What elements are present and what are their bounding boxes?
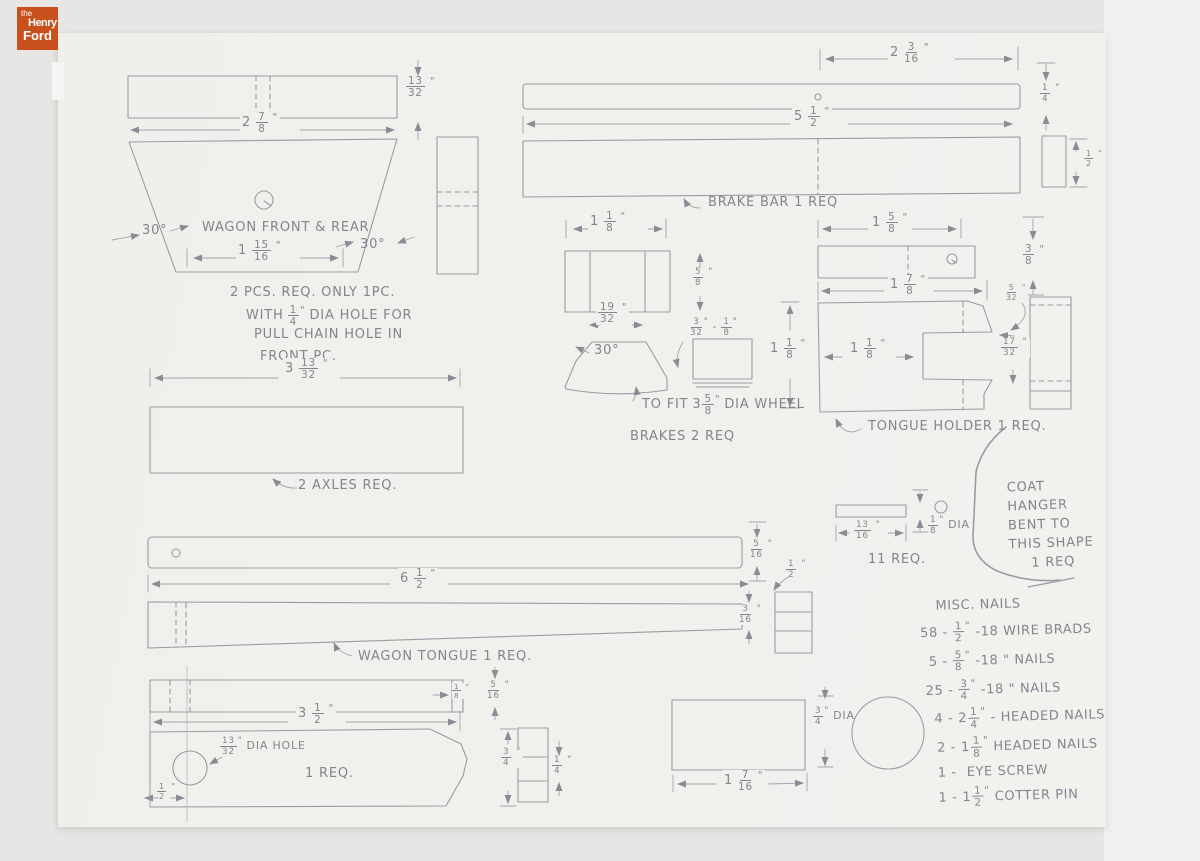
dim-handle-offset: 12" [155, 783, 177, 801]
dim-brake-width: 118" [588, 211, 628, 234]
note-line-2: WITH14"DIA HOLE FOR [244, 305, 414, 328]
dim-brakebar-offset: 2316" [888, 42, 931, 65]
dim-brakebar-length: 512" [792, 106, 832, 129]
dim-front-bottom: 11516" [236, 240, 283, 263]
angle-brake-label: 30° [592, 344, 621, 359]
dim-brakebar-stock: 12" [1082, 150, 1104, 168]
front-rear-side-view [437, 137, 478, 274]
wagon-tongue-part [148, 537, 812, 653]
part-label-front-rear: WAGON FRONT & REAR [200, 221, 371, 236]
part-label-wagon-tongue: WAGON TONGUE 1 REQ. [356, 650, 534, 665]
dim-axle-length: 31332" [283, 358, 330, 381]
part-label-axles: 2 AXLES REQ. [296, 479, 399, 494]
dim-holder-length: 178" [888, 274, 928, 297]
nails-item: 5 -58"-18 " NAILS [921, 645, 1158, 674]
part-label-brake-bar: BRAKE BAR 1 REQ [706, 196, 840, 211]
dim-holder-inner: 118" [848, 338, 888, 361]
angle-right-label: 30° [358, 238, 387, 253]
nails-item: 58 -12"-18 WIRE BRADS [920, 616, 1157, 645]
dim-front-width: 278" [240, 112, 280, 135]
nails-item: 25 -34"-18 " NAILS [921, 674, 1158, 703]
dim-handle-length: 312" [296, 703, 336, 726]
dim-brake-base: 1932" [596, 302, 629, 325]
dim-tongue-thick2: 316" [737, 605, 764, 625]
dim-tongue-length: 612" [398, 568, 438, 591]
dim-block-length: 1716" [722, 770, 765, 793]
dim-holder-notch: 1732" [999, 338, 1030, 358]
brake-bar-top [523, 84, 1066, 197]
dim-tongue-stock: 12" [784, 560, 808, 580]
dim-tongue-thick1: 516" [748, 540, 775, 560]
dim-brakebar-thickness: 14" [1038, 84, 1062, 104]
dim-handle-thick: 516" [485, 681, 512, 701]
scanned-wagon-plan: { "logo": { "the": "the", "henry": "Henr… [0, 0, 1200, 861]
dim-block-dia: 34"DIA [811, 707, 857, 727]
dim-handle-mid: 14" [550, 756, 574, 776]
dim-brake-height2: 118" [768, 338, 808, 361]
axle-bar [150, 407, 463, 473]
part-label-handle: 1 REQ. [303, 767, 356, 782]
part-label-brakes: BRAKES 2 REQ [628, 430, 737, 445]
nails-item: 4 -214"- HEADED NAILS [922, 702, 1159, 731]
misc-nails-list: MISC. NAILS 58 -12"-18 WIRE BRADS 5 -58"… [919, 593, 1160, 810]
dim-handle-notch: 18" [452, 683, 469, 699]
dim-holder-small: 532" [1004, 284, 1028, 302]
dim-front-thickness: 1332" [404, 76, 437, 99]
dim-holder-top: 158" [870, 212, 910, 235]
note-line-1: 2 PCS. REQ. ONLY 1PC. [228, 286, 397, 301]
dim-holder-thickness: 38" [1021, 244, 1047, 267]
part-label-rods: 11 REQ. [866, 553, 928, 568]
dim-handle-end: 34" [499, 748, 523, 768]
dim-rod-dia: 18"DIA [926, 516, 972, 536]
nails-item: 1 -EYE SCREW [924, 760, 1160, 781]
part-label-tongue-holder: TONGUE HOLDER 1 REQ. [866, 420, 1049, 435]
note-coat-hanger: COAT HANGER BENT TO THIS SHAPE 1 REQ [1004, 475, 1096, 573]
tongue-holder-part [818, 246, 1071, 412]
note-fit-wheel: TO FIT358"DIA WHEEL [640, 394, 807, 417]
dim-brake-pad: 332"-18" [688, 318, 739, 338]
angle-left-label: 30° [140, 224, 169, 239]
nails-item: 2 -118"HEADED NAILS [923, 731, 1160, 760]
block-and-wheel [672, 697, 924, 770]
dim-rod-length: 1316" [852, 521, 883, 541]
note-line-3: PULL CHAIN HOLE IN [252, 328, 405, 343]
dim-brake-height: 58" [691, 268, 715, 288]
dim-handle-hole: 1332"DIA HOLE [218, 737, 308, 757]
